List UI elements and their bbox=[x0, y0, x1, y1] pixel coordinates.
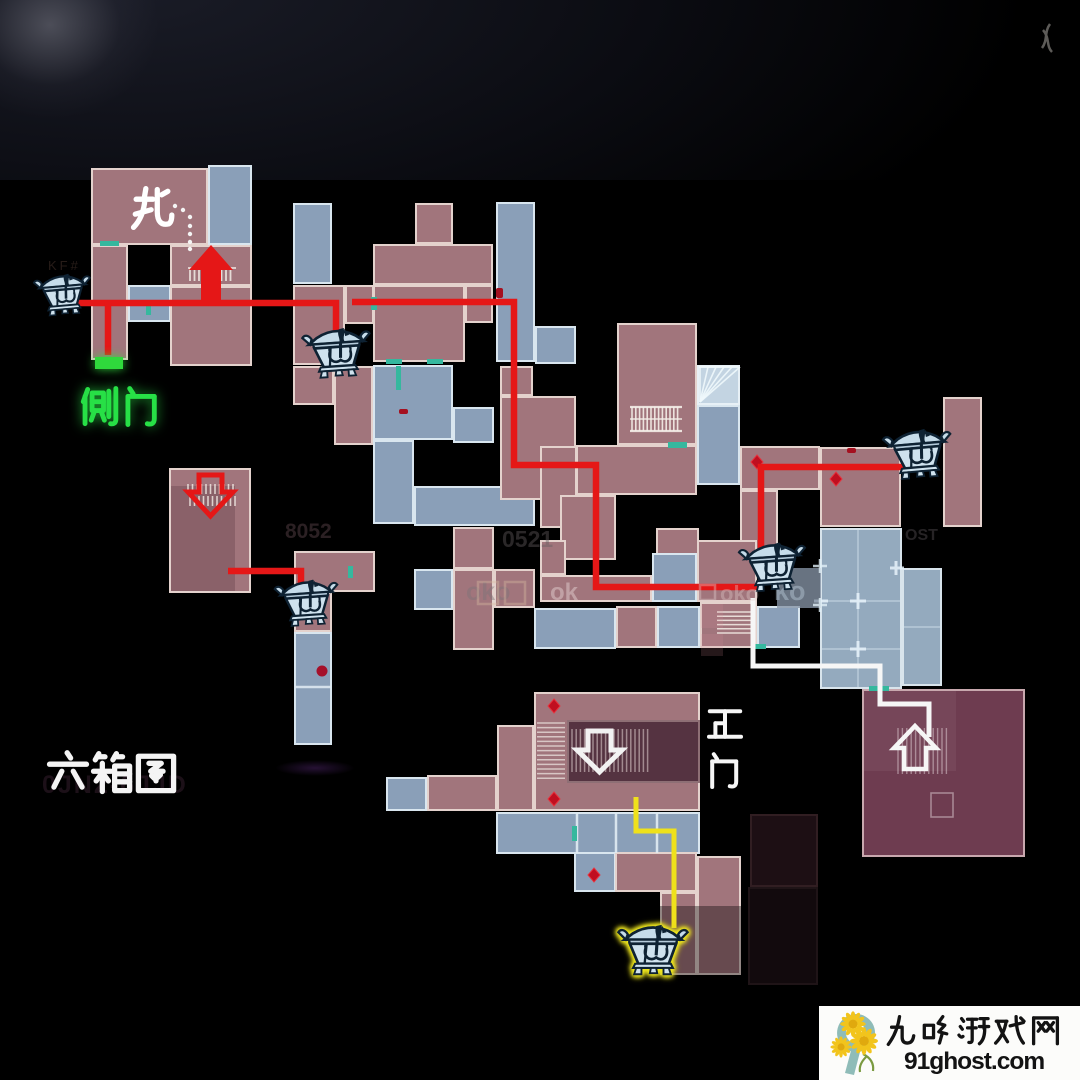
svg-text:ok: ok bbox=[550, 579, 579, 606]
svg-text:91ghost.com: 91ghost.com bbox=[904, 1048, 1044, 1075]
svg-text:KF#: KF# bbox=[48, 258, 81, 273]
svg-text:oko: oko bbox=[720, 581, 759, 606]
svg-text:8052: 8052 bbox=[285, 520, 332, 543]
svg-text:0521: 0521 bbox=[502, 526, 553, 552]
svg-text:OST: OST bbox=[905, 527, 938, 544]
